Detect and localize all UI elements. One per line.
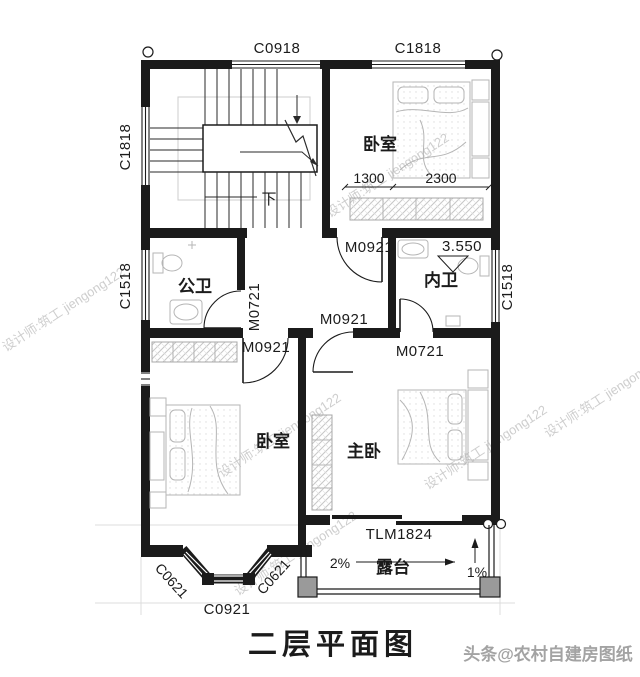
drawing-title: 二层平面图 — [248, 629, 418, 661]
window-label-C1518-left: C1518 — [117, 263, 134, 310]
room-label-terrace: 露台 — [376, 557, 410, 577]
door-public-bath — [204, 291, 241, 328]
window-label-C1818-top: C1818 — [395, 40, 442, 57]
window-label-C0621-left: C0621 — [152, 560, 192, 602]
rain-pipe-circle — [497, 520, 506, 529]
window-C1518-left — [141, 250, 150, 320]
terrace-column — [298, 577, 317, 597]
sink-public-bath — [170, 300, 202, 324]
door-label-public-bath: M0721 — [246, 283, 263, 331]
rain-pipe-circle — [484, 520, 493, 529]
bed-top-right — [393, 80, 489, 178]
watermark-text: 设计师:筑工 jiengong122 — [541, 350, 640, 441]
room-label-bedroom-top: 卧室 — [363, 134, 397, 154]
door-label-terrace: TLM1824 — [366, 526, 433, 543]
elevation-label: 3.550 — [442, 238, 482, 255]
bed-master — [398, 370, 488, 480]
door-label-ensuite: M0721 — [396, 343, 444, 360]
stairs — [150, 69, 318, 228]
slope-label-1pct: 1% — [467, 564, 487, 580]
window-label-C1818-left: C1818 — [117, 124, 134, 171]
window-C0918 — [232, 60, 320, 69]
bed-bottom-left — [150, 398, 240, 508]
floor-plan-drawing: 设计师:筑工 jiengong122 设计师:筑工 jiengong122 设计… — [0, 0, 640, 677]
credit-watermark: 头条@农村自建房图纸 — [463, 644, 633, 664]
room-label-master: 主卧 — [347, 441, 381, 461]
room-label-ensuite: 内卫 — [424, 270, 458, 290]
door-ensuite-bath — [400, 299, 433, 332]
window-label-C0921: C0921 — [204, 601, 251, 618]
toilet-ensuite — [446, 256, 489, 326]
dim-1300: 1300 — [353, 170, 384, 186]
window-left-small — [141, 372, 150, 386]
door-label-master-entry: M0921 — [320, 311, 368, 328]
wardrobe-master — [312, 415, 332, 510]
door-label-bedroom-left: M0921 — [242, 339, 290, 356]
room-label-public-bath: 公卫 — [178, 277, 212, 296]
stairs-down-label: 下 — [261, 191, 276, 208]
toilet-public-bath — [153, 241, 196, 273]
room-label-bedroom-left: 卧室 — [256, 431, 290, 451]
window-label-C0918: C0918 — [254, 40, 301, 57]
door-label-bedroom-top: M0921 — [345, 239, 393, 256]
window-C1818-top — [372, 60, 465, 69]
dim-2300: 2300 — [425, 170, 456, 186]
slope-label-2pct: 2% — [330, 555, 350, 571]
watermark-text: 设计师:筑工 jiengong122 — [0, 264, 128, 355]
floor-plan-canvas: 设计师:筑工 jiengong122 设计师:筑工 jiengong122 设计… — [0, 0, 640, 677]
sink-ensuite — [398, 240, 428, 258]
window-C1818-left — [141, 107, 150, 185]
watermarks: 设计师:筑工 jiengong122 设计师:筑工 jiengong122 设计… — [0, 130, 640, 599]
window-label-C1518-right: C1518 — [499, 264, 516, 311]
terrace-column — [480, 577, 500, 597]
door-master-entry — [313, 332, 353, 372]
